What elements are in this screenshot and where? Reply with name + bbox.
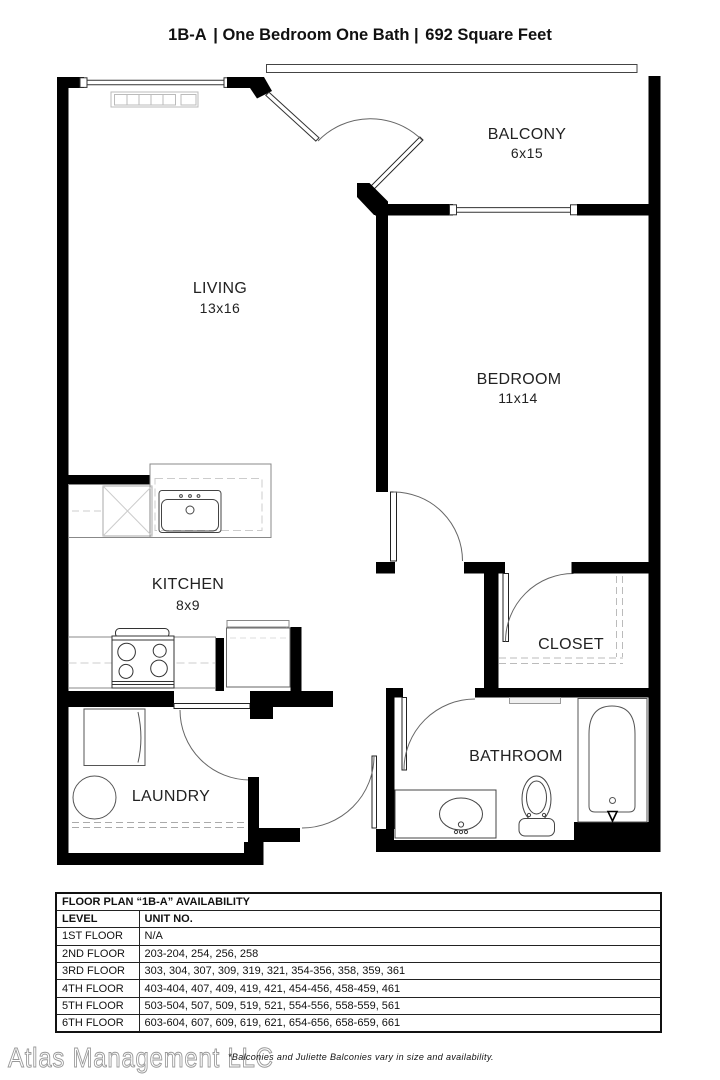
svg-text:BEDROOM: BEDROOM	[477, 371, 562, 388]
svg-text:CLOSET: CLOSET	[538, 636, 604, 653]
svg-text:6x15: 6x15	[511, 145, 543, 161]
svg-text:BATHROOM: BATHROOM	[469, 748, 563, 765]
svg-text:13x16: 13x16	[200, 300, 241, 316]
svg-text:8x9: 8x9	[176, 597, 200, 613]
svg-text:11x14: 11x14	[498, 390, 538, 406]
svg-text:1B-A | One Bedroom One Bath |: 1B-A | One Bedroom One Bath | 692 Square…	[168, 26, 552, 44]
svg-text:LIVING: LIVING	[193, 280, 247, 297]
svg-text:KITCHEN: KITCHEN	[152, 576, 224, 593]
svg-text:LAUNDRY: LAUNDRY	[132, 788, 210, 805]
svg-text:BALCONY: BALCONY	[488, 126, 567, 143]
